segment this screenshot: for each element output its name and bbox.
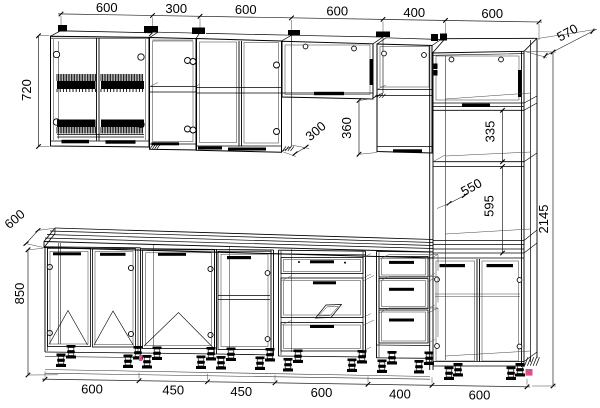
svg-text:450: 450 xyxy=(162,383,184,398)
svg-text:600: 600 xyxy=(326,4,348,19)
svg-text:600: 600 xyxy=(481,6,503,21)
svg-text:600: 600 xyxy=(96,0,118,15)
svg-text:2145: 2145 xyxy=(536,205,551,234)
svg-text:600: 600 xyxy=(235,2,257,17)
svg-text:400: 400 xyxy=(389,386,411,401)
svg-text:600: 600 xyxy=(469,388,491,403)
svg-text:335: 335 xyxy=(483,121,498,143)
svg-text:300: 300 xyxy=(165,1,187,16)
svg-text:850: 850 xyxy=(12,283,27,305)
svg-text:360: 360 xyxy=(339,117,354,139)
svg-text:400: 400 xyxy=(403,5,425,20)
svg-text:600: 600 xyxy=(311,385,333,400)
svg-text:600: 600 xyxy=(81,381,103,396)
svg-text:720: 720 xyxy=(19,79,34,101)
svg-text:450: 450 xyxy=(230,384,252,399)
svg-text:595: 595 xyxy=(482,195,497,217)
